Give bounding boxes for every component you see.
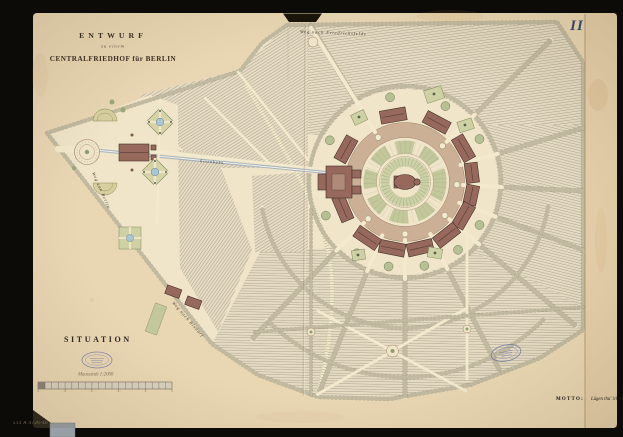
title-line3: CENTRALFRIEDHOF für BERLIN (50, 55, 177, 63)
page-vignette (33, 13, 617, 428)
map-scan: ENTWURF zu einem CENTRALFRIEDHOF für BER… (0, 0, 623, 437)
situation-label: SITUATION (64, 335, 132, 344)
motto-label: MOTTO: (556, 397, 584, 402)
title-line1: ENTWURF (79, 31, 147, 40)
catalog-number: 513 A 4726-46 (13, 421, 48, 426)
plate-number: II (569, 18, 584, 34)
scanned-map-photo: ENTWURF zu einem CENTRALFRIEDHOF für BER… (0, 0, 623, 437)
scale-caption: Maassstab 1:2000 (77, 373, 114, 378)
motto-text: Lügen thu' ich nicht (590, 397, 623, 402)
title-line2: zu einem (100, 44, 125, 49)
